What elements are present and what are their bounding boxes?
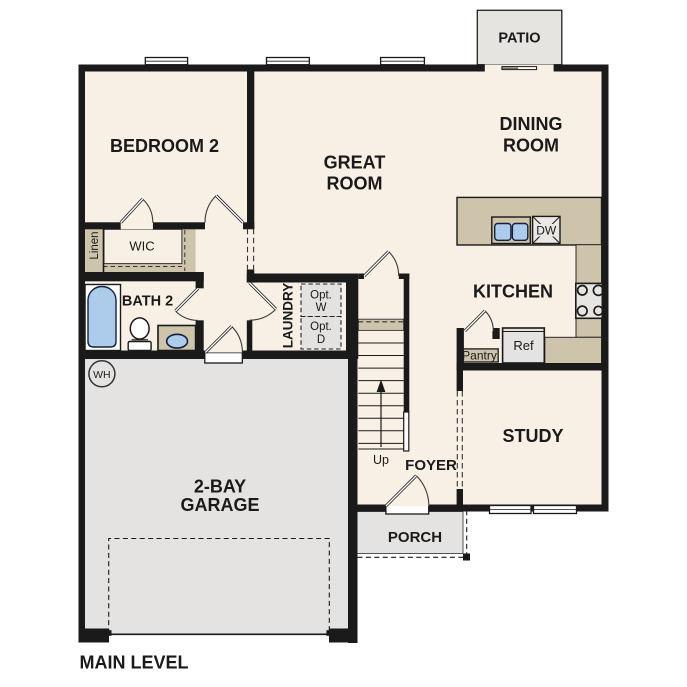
svg-text:Opt.: Opt. [310,290,332,302]
svg-text:MAIN LEVEL: MAIN LEVEL [80,653,189,673]
svg-text:BATH 2: BATH 2 [122,294,173,310]
svg-text:BEDROOM 2: BEDROOM 2 [110,136,219,156]
svg-text:Opt.: Opt. [310,321,332,333]
svg-text:PATIO: PATIO [498,31,540,47]
svg-text:PORCH: PORCH [388,529,442,546]
svg-text:Up: Up [373,453,389,467]
svg-text:Pantry: Pantry [462,349,497,363]
svg-text:GARAGE: GARAGE [180,495,259,515]
svg-text:KITCHEN: KITCHEN [473,282,553,302]
svg-text:D: D [317,334,325,346]
svg-text:Ref: Ref [513,338,534,353]
svg-text:STUDY: STUDY [502,426,563,446]
svg-text:ROOM: ROOM [503,135,559,155]
svg-text:WH: WH [93,369,111,381]
svg-text:DW: DW [536,224,557,238]
svg-text:W: W [316,302,327,314]
svg-text:DINING: DINING [500,114,563,134]
svg-text:Linen: Linen [89,231,101,259]
svg-text:LAUNDRY: LAUNDRY [281,283,296,349]
svg-text:ROOM: ROOM [327,174,383,194]
svg-text:WIC: WIC [129,239,154,254]
svg-text:2-BAY: 2-BAY [194,477,246,497]
svg-text:FOYER: FOYER [405,457,457,474]
svg-text:GREAT: GREAT [324,153,386,173]
